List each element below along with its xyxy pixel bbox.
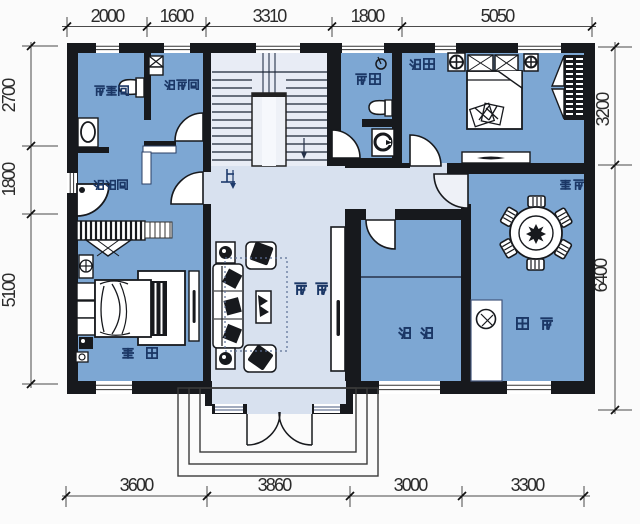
svg-text:3000: 3000 bbox=[394, 475, 429, 495]
svg-text:1800: 1800 bbox=[0, 162, 19, 197]
svg-text:2700: 2700 bbox=[0, 78, 19, 113]
svg-text:5100: 5100 bbox=[0, 273, 19, 308]
svg-text:3860: 3860 bbox=[258, 475, 293, 495]
svg-text:3310: 3310 bbox=[253, 6, 288, 26]
svg-text:1600: 1600 bbox=[160, 6, 195, 26]
svg-text:1800: 1800 bbox=[351, 6, 386, 26]
svg-text:5050: 5050 bbox=[481, 6, 516, 26]
svg-text:3600: 3600 bbox=[120, 475, 155, 495]
svg-text:2000: 2000 bbox=[91, 6, 126, 26]
svg-text:3300: 3300 bbox=[511, 475, 546, 495]
svg-text:3200: 3200 bbox=[593, 92, 613, 127]
